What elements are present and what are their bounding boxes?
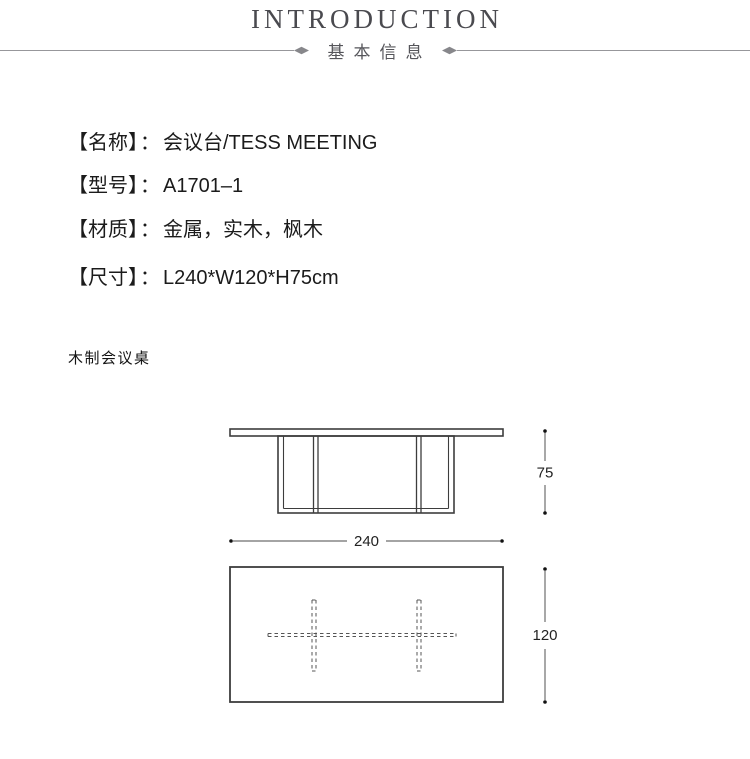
tabletop-outline bbox=[230, 429, 503, 436]
spec-value: A1701–1 bbox=[163, 175, 243, 197]
spec-row-model: 【型号】：A1701–1 bbox=[68, 175, 377, 197]
tabletop-plan-outline bbox=[230, 567, 503, 702]
dimension-label-depth: 120 bbox=[532, 627, 557, 644]
divider-line-right bbox=[457, 50, 750, 51]
spec-separator: ： bbox=[140, 267, 160, 289]
top-view-drawing bbox=[230, 567, 503, 702]
spec-label: 【型号】 bbox=[68, 175, 138, 197]
divider-line-left bbox=[0, 50, 294, 51]
spec-separator: ： bbox=[140, 219, 160, 241]
hidden-base-dashed-lines bbox=[268, 600, 456, 671]
dimension-label-height: 75 bbox=[537, 465, 554, 482]
spec-label: 【名称】 bbox=[68, 132, 138, 154]
product-note: 木制会议桌 bbox=[68, 347, 151, 368]
dimension-end-dot bbox=[543, 511, 547, 515]
spec-row-size: 【尺寸】：L240*W120*H75cm bbox=[68, 267, 377, 289]
front-view-drawing bbox=[230, 429, 503, 513]
product-introduction-page: INTRODUCTION 基本信息 【名称】：会议台/TESS MEETING … bbox=[0, 0, 750, 759]
technical-drawing: 75 240 bbox=[0, 415, 750, 715]
page-title: INTRODUCTION bbox=[0, 4, 750, 35]
section-divider: 基本信息 bbox=[0, 41, 750, 59]
spec-separator: ： bbox=[140, 175, 160, 197]
spec-list: 【名称】：会议台/TESS MEETING 【型号】：A1701–1 【材质】：… bbox=[68, 132, 377, 310]
base-inner-outline bbox=[284, 436, 449, 509]
spec-label: 【尺寸】 bbox=[68, 267, 138, 289]
diamond-icon-left bbox=[294, 46, 309, 55]
diamond-icon-right bbox=[442, 46, 457, 55]
leg-panel-lines bbox=[314, 436, 422, 513]
dimension-height: 75 bbox=[537, 429, 554, 515]
base-outer-outline bbox=[278, 436, 454, 513]
spec-value: L240*W120*H75cm bbox=[163, 267, 339, 289]
spec-separator: ： bbox=[140, 132, 160, 154]
dimension-end-dot bbox=[543, 429, 547, 433]
spec-value: 金属，实木，枫木 bbox=[163, 219, 323, 241]
section-subtitle: 基本信息 bbox=[319, 38, 432, 63]
dimension-label-width: 240 bbox=[354, 533, 379, 550]
spec-row-name: 【名称】：会议台/TESS MEETING bbox=[68, 132, 377, 154]
spec-label: 【材质】 bbox=[68, 219, 138, 241]
dimension-end-dot bbox=[543, 700, 547, 704]
dimension-width: 240 bbox=[229, 533, 504, 550]
dimension-end-dot bbox=[229, 539, 233, 543]
dimension-end-dot bbox=[500, 539, 504, 543]
spec-value: 会议台/TESS MEETING bbox=[163, 132, 377, 154]
spec-row-material: 【材质】：金属，实木，枫木 bbox=[68, 219, 377, 241]
dimension-depth: 120 bbox=[532, 567, 557, 704]
dimension-end-dot bbox=[543, 567, 547, 571]
